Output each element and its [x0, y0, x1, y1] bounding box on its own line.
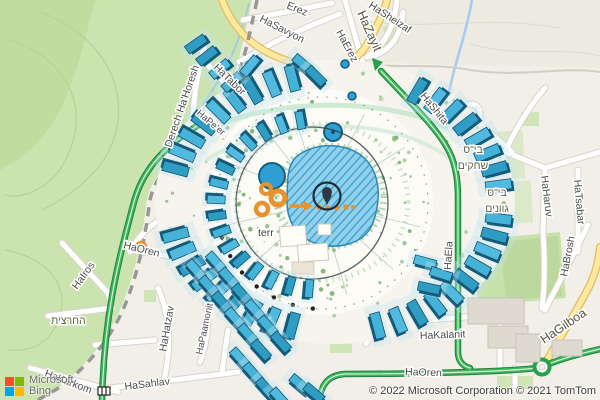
building [304, 279, 314, 298]
map-svg[interactable]: Erez HaSavyon HaSheizaf HaErez HaZayit H… [0, 0, 600, 400]
map-canvas[interactable]: Erez HaSavyon HaSheizaf HaErez HaZayit H… [0, 0, 600, 400]
school-label-gvanim: גוונים [485, 203, 509, 215]
microsoft-logo-icon [5, 377, 24, 396]
building [207, 195, 225, 204]
bing-logo[interactable]: Microsoft Bing [5, 375, 74, 397]
street-label-hakalanit: HaKalanit [420, 328, 466, 342]
label-terrace: terr [258, 227, 274, 239]
school-label-gvanim: בי"ס [487, 187, 507, 199]
school-label-shahakim: שחקים [458, 160, 489, 172]
street-label-hahartzit: החרצית [51, 315, 86, 327]
brand-line2: Bing [29, 386, 74, 397]
gate-icon [98, 387, 110, 395]
school-label-shahakim: בי"ס [463, 144, 483, 156]
street-label-haela: HaEla [442, 241, 455, 270]
copyright-text: © 2022 Microsoft Corporation © 2021 TomT… [369, 385, 596, 397]
street-label-haoren-east: HaOren [405, 366, 442, 379]
